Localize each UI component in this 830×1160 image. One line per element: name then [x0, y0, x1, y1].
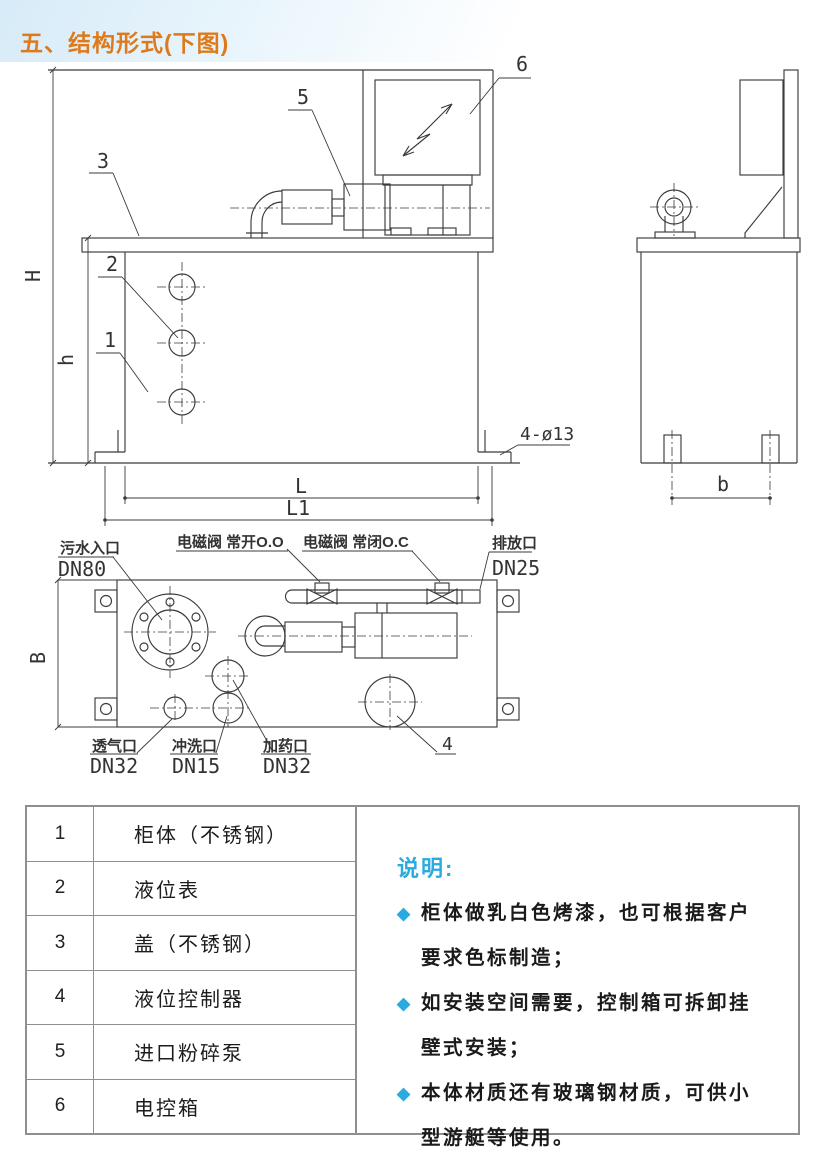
callout-6-label: 6	[516, 52, 528, 76]
solenoid-valve-open-label: 电磁阀 常开O.O	[177, 533, 284, 551]
callout-2-label: 2	[106, 252, 118, 276]
part-number: 5	[27, 1025, 94, 1079]
callout-5-label: 5	[297, 85, 309, 109]
table-row: 3 盖（不锈钢）	[27, 916, 355, 971]
note-text: 柜体做乳白色烤漆，也可根据客户要求色标制造；	[421, 902, 751, 969]
dosing-port-size: DN32	[263, 754, 311, 778]
part-name: 柜体（不锈钢）	[94, 807, 355, 861]
part-number: 3	[27, 916, 94, 970]
vent-port-size: DN32	[90, 754, 138, 778]
part-name: 液位表	[94, 862, 355, 916]
drain-port-size: DN25	[492, 556, 540, 580]
note-text: 本体材质还有玻璃钢材质，可供小型游艇等使用。	[421, 1082, 751, 1149]
notes-panel: 说明: ◆ 柜体做乳白色烤漆，也可根据客户要求色标制造； ◆ 如安装空间需要，控…	[357, 807, 798, 1133]
plan-view: B	[26, 533, 540, 778]
dim-B-label: B	[26, 652, 50, 664]
dim-h-label: h	[54, 354, 78, 366]
dim-b-label: b	[717, 472, 729, 496]
catalog-page: 五、结构形式(下图) H h	[0, 0, 830, 1160]
part-name: 盖（不锈钢）	[94, 916, 355, 970]
front-view: H h	[21, 52, 574, 526]
table-row: 5 进口粉碎泵	[27, 1025, 355, 1080]
foot-hole-note: 4-ø13	[520, 424, 574, 445]
dosing-port-label: 加药口	[262, 737, 308, 755]
parts-list: 1 柜体（不锈钢） 2 液位表 3 盖（不锈钢） 4 液位控制器 5 进口粉碎泵…	[27, 807, 357, 1133]
part-number: 1	[27, 807, 94, 861]
parts-and-notes-table: 1 柜体（不锈钢） 2 液位表 3 盖（不锈钢） 4 液位控制器 5 进口粉碎泵…	[25, 805, 800, 1135]
lightning-bolt-icon	[403, 104, 452, 156]
part-name: 进口粉碎泵	[94, 1025, 355, 1079]
dim-L1-label: L1	[286, 496, 310, 520]
table-row: 4 液位控制器	[27, 971, 355, 1026]
note-item: ◆ 如安装空间需要，控制箱可拆卸挂壁式安装；	[397, 981, 772, 1071]
solenoid-valve-closed-label: 电磁阀 常闭O.C	[303, 533, 409, 551]
diamond-bullet-icon: ◆	[397, 1071, 413, 1116]
diamond-bullet-icon: ◆	[397, 981, 413, 1026]
vent-port-label: 透气口	[92, 737, 137, 755]
dim-H-label: H	[21, 270, 45, 282]
structure-drawing: H h	[0, 0, 830, 798]
callout-1-label: 1	[104, 328, 116, 352]
part-name: 电控箱	[94, 1080, 355, 1134]
part-name: 液位控制器	[94, 971, 355, 1025]
table-row: 1 柜体（不锈钢）	[27, 807, 355, 862]
notes-heading: 说明:	[397, 851, 772, 883]
drain-port-label: 排放口	[492, 534, 537, 552]
dim-L-label: L	[295, 474, 307, 498]
part-number: 2	[27, 862, 94, 916]
part-number: 6	[27, 1080, 94, 1134]
callout-4-label: 4	[442, 734, 453, 755]
table-row: 6 电控箱	[27, 1080, 355, 1134]
flush-port-size: DN15	[172, 754, 220, 778]
inlet-port-size: DN80	[58, 557, 106, 581]
part-number: 4	[27, 971, 94, 1025]
callout-3-label: 3	[97, 149, 109, 173]
flush-port-label: 冲洗口	[172, 737, 217, 755]
note-text: 如安装空间需要，控制箱可拆卸挂壁式安装；	[421, 992, 751, 1059]
side-view: b	[637, 70, 800, 505]
note-item: ◆ 本体材质还有玻璃钢材质，可供小型游艇等使用。	[397, 1071, 772, 1160]
diamond-bullet-icon: ◆	[397, 891, 413, 936]
table-row: 2 液位表	[27, 862, 355, 917]
inlet-port-label: 污水入口	[60, 539, 120, 557]
note-item: ◆ 柜体做乳白色烤漆，也可根据客户要求色标制造；	[397, 891, 772, 981]
